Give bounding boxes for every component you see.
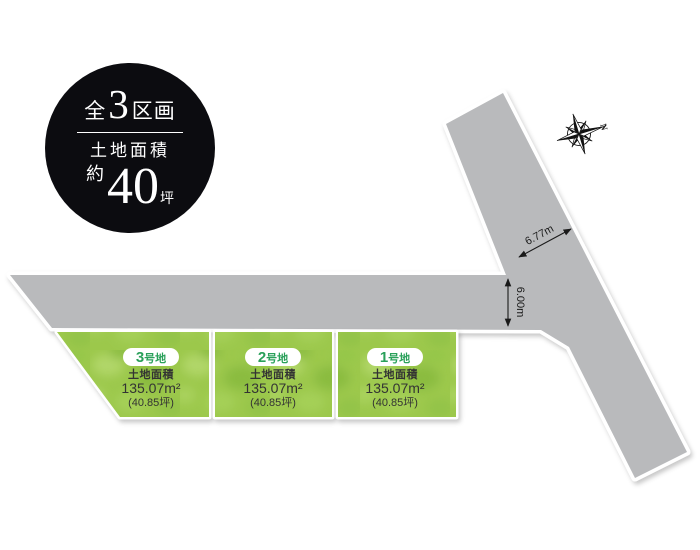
lot-1-area-tsubo: (40.85坪) (372, 396, 418, 409)
lot-2-area-tsubo: (40.85坪) (250, 396, 296, 409)
dimension-label-horizontal: 6.00m (514, 287, 526, 318)
compass-icon (551, 106, 610, 160)
badge-area-number: 40 (107, 161, 159, 213)
badge-total-prefix: 全 (84, 101, 106, 122)
badge-total-lots: 全3区画 (84, 84, 176, 125)
compass-north-label: N (598, 123, 609, 132)
site-plan: 3号地 土地面積 135.07m² (40.85坪) 2号地 土地面積 135.… (0, 0, 700, 550)
badge-area-title: 土地面積 (90, 142, 170, 159)
lot-3-area-tsubo: (40.85坪) (128, 396, 174, 409)
lot-2-label: 2号地 土地面積 135.07m² (40.85坪) (243, 348, 302, 409)
badge-total-number: 3 (108, 84, 130, 125)
badge-area-value: 約40坪 (86, 161, 174, 213)
badge-total-suffix: 区画 (132, 101, 176, 122)
badge-area-approx: 約 (86, 165, 104, 183)
lot-2-area-title: 土地面積 (250, 367, 296, 381)
lot-1-label: 1号地 土地面積 135.07m² (40.85坪) (365, 348, 424, 409)
lot-1-area-m2: 135.07m² (365, 380, 424, 396)
badge-divider (77, 132, 183, 133)
lot-1-area-title: 土地面積 (372, 367, 418, 381)
lot-3-area-title: 土地面積 (128, 367, 174, 381)
lot-3-label: 3号地 土地面積 135.07m² (40.85坪) (121, 348, 180, 409)
summary-badge: 全3区画 土地面積 約40坪 (45, 63, 215, 233)
badge-area-unit: 坪 (160, 193, 174, 207)
lot-2-area-m2: 135.07m² (243, 380, 302, 396)
lot-3-area-m2: 135.07m² (121, 380, 180, 396)
